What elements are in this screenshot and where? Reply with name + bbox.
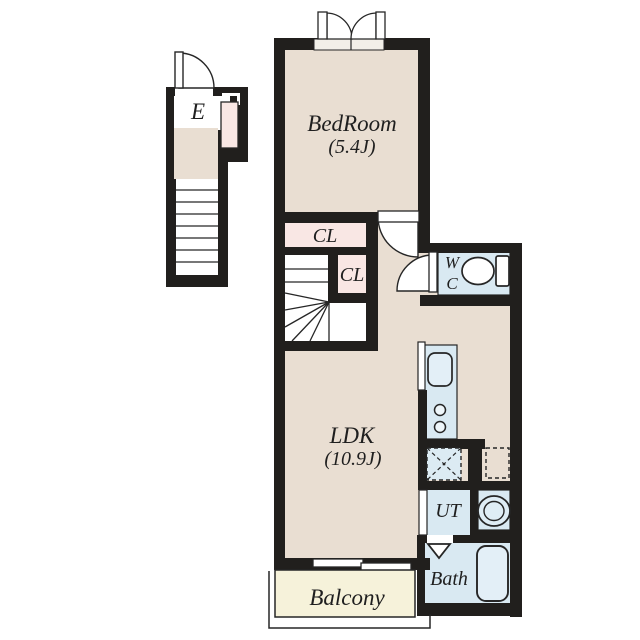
wall-utility-top bbox=[419, 481, 510, 490]
wc-label-c: C bbox=[446, 274, 458, 293]
floor-plan: E bbox=[0, 0, 640, 640]
casement-window-right-leaf-icon bbox=[376, 12, 385, 39]
entrance-label: E bbox=[190, 99, 205, 124]
shoe-cabinet bbox=[221, 102, 238, 148]
wall-utility-right bbox=[470, 490, 478, 535]
sliding-window-pane-left bbox=[313, 559, 363, 567]
wall-closet-right bbox=[366, 212, 378, 351]
toilet-bowl-icon bbox=[462, 258, 494, 285]
bedroom-size-label: (5.4J) bbox=[328, 136, 376, 158]
wall-closet2-left bbox=[328, 255, 338, 293]
casement-window-frame bbox=[314, 39, 384, 50]
internal-stairs-upper bbox=[285, 255, 328, 303]
entrance-door-leaf-icon bbox=[175, 52, 183, 88]
bedroom-label: BedRoom bbox=[307, 111, 396, 136]
wc-door-leaf-icon bbox=[429, 252, 437, 292]
closet-upper-label: CL bbox=[313, 225, 337, 247]
bedroom-door-leaf-icon bbox=[378, 211, 419, 222]
bath-label: Bath bbox=[430, 568, 468, 590]
wall-wc-bottom bbox=[420, 295, 522, 306]
stove-burner-icon bbox=[435, 422, 446, 433]
wall-closet-mid bbox=[285, 247, 378, 255]
washing-machine-icon bbox=[478, 496, 510, 526]
stove-burner-icon bbox=[435, 405, 446, 416]
wall-bedroom-right bbox=[418, 38, 430, 253]
ldk-size-label: (10.9J) bbox=[324, 448, 382, 470]
bathtub-icon bbox=[477, 546, 508, 601]
wall-left bbox=[274, 38, 285, 570]
wall-washer-bottom bbox=[475, 530, 522, 543]
wc-label-w: W bbox=[445, 253, 461, 272]
kitchen-side-panel bbox=[418, 342, 425, 390]
toilet-icon bbox=[496, 256, 509, 286]
wall-stairs-bottom bbox=[285, 341, 378, 351]
closet-lower-label: CL bbox=[340, 264, 364, 286]
ldk-label: LDK bbox=[329, 423, 376, 448]
appliance-space-icon bbox=[486, 448, 509, 478]
wall-bath-left bbox=[417, 535, 425, 612]
wall-closet2-bottom bbox=[328, 293, 378, 303]
outside-stairs bbox=[176, 179, 218, 275]
kitchen-sink-icon bbox=[428, 353, 452, 386]
wall-closet-top bbox=[285, 212, 378, 223]
floor-plan-page: E bbox=[0, 0, 640, 640]
balcony-label: Balcony bbox=[309, 585, 385, 610]
wall-pillar bbox=[468, 443, 482, 481]
utility-sliding-door-icon bbox=[419, 490, 427, 535]
bath-door-opening bbox=[427, 535, 453, 543]
casement-window-left-leaf-icon bbox=[318, 12, 327, 39]
wall-bottom bbox=[417, 603, 522, 616]
utility-label: UT bbox=[435, 500, 462, 522]
entrance-landing-floor bbox=[174, 128, 218, 179]
refrigerator-space-icon bbox=[427, 448, 461, 480]
